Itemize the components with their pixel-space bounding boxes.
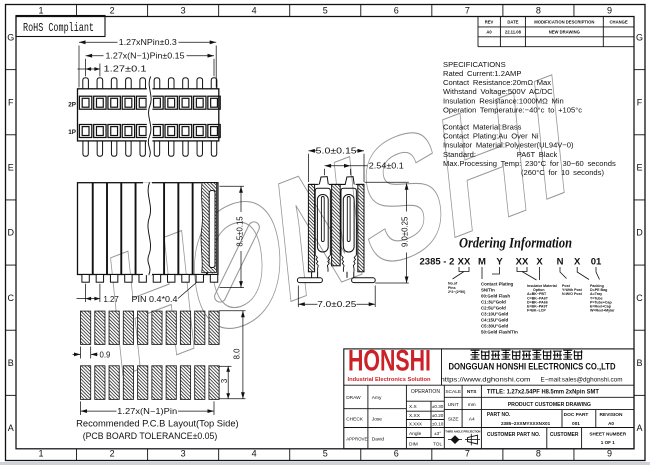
svg-text:C1:3U"Gold: C1:3U"Gold [481, 300, 506, 305]
svg-text:C4:15U"Gold: C4:15U"Gold [481, 318, 509, 323]
svg-text:A4: A4 [469, 417, 475, 423]
svg-text:X: X [574, 256, 581, 267]
svg-text:F: F [637, 97, 643, 107]
svg-text:G: G [7, 32, 14, 42]
svg-text:N:W/O Post: N:W/O Post [562, 292, 583, 296]
svg-text:TITLE: 1.27x2.54PF H8.5mm 2xNp: TITLE: 1.27x2.54PF H8.5mm 2xNpin SMT [487, 389, 599, 395]
svg-text:HONSHI: HONSHI [348, 345, 431, 378]
svg-text:2*2~(2*50): 2*2~(2*50) [448, 290, 466, 294]
svg-text:1.27xNPin±0.3: 1.27xNPin±0.3 [119, 38, 177, 47]
svg-text:XX: XX [516, 256, 529, 267]
svg-text:THIRD ANGLE PROJECTION: THIRD ANGLE PROJECTION [445, 430, 480, 434]
svg-text:5: 5 [323, 449, 328, 459]
svg-text:Contact Material:Brass: Contact Material:Brass [443, 122, 522, 131]
svg-text:±3°: ±3° [434, 431, 441, 436]
svg-text:DRAW: DRAW [346, 395, 361, 401]
svg-text:7: 7 [465, 449, 470, 459]
svg-text:SIZE: SIZE [448, 417, 459, 423]
svg-text:1.27x(N−1)Pin: 1.27x(N−1)Pin [117, 407, 177, 416]
svg-text:01: 01 [591, 256, 602, 267]
svg-text:Rated Current:1.2AMP: Rated Current:1.2AMP [443, 69, 521, 78]
svg-text:Contact Plating: Contact Plating [481, 282, 514, 287]
svg-text:(PCB BOARD TOLERANCE±0.05): (PCB BOARD TOLERANCE±0.05) [83, 431, 218, 441]
svg-text:Industrial Electronics Solutio: Industrial Electronics Solution [348, 377, 431, 383]
svg-text:2385 - 2: 2385 - 2 [420, 256, 455, 267]
svg-text:F=BK−LCP: F=BK−LCP [527, 309, 546, 313]
svg-text:8.0: 8.0 [233, 348, 242, 360]
svg-text:F: F [8, 97, 14, 107]
svg-text:DOC PART: DOC PART [564, 412, 589, 418]
svg-text:Standard: PA6T Black: Standard: PA6T Black [443, 150, 558, 159]
svg-text:CUSTOMER: CUSTOMER [550, 432, 579, 438]
svg-text:1.27x(N−1)Pin±0.15: 1.27x(N−1)Pin±0.15 [106, 51, 186, 60]
svg-text:2385−2XXMYXXXNX01: 2385−2XXMYXXXNX01 [501, 421, 551, 426]
svg-text:9: 9 [607, 449, 612, 459]
svg-text:E: E [636, 163, 642, 173]
svg-text:8.5±0.15: 8.5±0.15 [236, 216, 245, 247]
svg-text:3: 3 [220, 379, 229, 383]
svg-text:Withstand Voltage:500V AC/DC: Withstand Voltage:500V AC/DC [443, 87, 553, 96]
svg-text:D: D [636, 228, 643, 238]
svg-text:Insulator Material:Polyester(U: Insulator Material:Polyester(UL94V−0) [443, 141, 574, 150]
svg-text:B: B [8, 358, 14, 368]
svg-text:David: David [372, 436, 385, 442]
svg-text:6: 6 [394, 6, 399, 16]
svg-text:UNIT: UNIT [448, 402, 459, 408]
svg-text:NEW DRAWING: NEW DRAWING [549, 30, 580, 35]
svg-text:OPERATION: OPERATION [411, 389, 440, 395]
svg-text:C: C [636, 293, 643, 303]
svg-text:5: 5 [323, 6, 328, 16]
svg-text:1.27: 1.27 [104, 295, 119, 304]
svg-text:Insulation Resistance:1000MΩ M: Insulation Resistance:1000MΩ Min [443, 96, 564, 105]
svg-text:PIN 0.4*0.4: PIN 0.4*0.4 [132, 295, 179, 304]
svg-text:mm: mm [468, 403, 476, 408]
svg-text:Max.Processing Temp: 230°C for: Max.Processing Temp: 230°C for 30−60 sec… [443, 159, 616, 168]
svg-text:1.27±0.1: 1.27±0.1 [104, 65, 147, 74]
svg-text:5.0±0.15: 5.0±0.15 [316, 146, 358, 155]
svg-text:Contact Resistance:20mΩ Max: Contact Resistance:20mΩ Max [443, 78, 551, 87]
svg-text:PART NO.: PART NO. [487, 412, 511, 418]
svg-text:Ordering Information: Ordering Information [459, 236, 572, 252]
svg-text:TOL: TOL [433, 442, 442, 447]
svg-text:REV: REV [485, 20, 494, 25]
svg-text:22.11.08: 22.11.08 [505, 30, 522, 35]
svg-text:E: E [8, 163, 14, 173]
svg-text:3: 3 [181, 6, 186, 16]
svg-text:±0.30: ±0.30 [432, 404, 444, 409]
svg-text:SN/Tin: SN/Tin [481, 288, 495, 293]
svg-text:B: B [636, 358, 642, 368]
svg-text:Angle: Angle [409, 431, 422, 437]
svg-text:M: M [478, 256, 486, 267]
svg-text:2: 2 [110, 449, 115, 459]
svg-text:CHECK: CHECK [346, 416, 364, 422]
svg-text:CHANGE: CHANGE [610, 20, 628, 25]
svg-text:4: 4 [252, 449, 257, 459]
svg-text:DATE: DATE [507, 20, 518, 25]
svg-text:1: 1 [39, 449, 44, 459]
svg-text:8: 8 [536, 449, 541, 459]
svg-text:Recommended P.C.B Layout(Top S: Recommended P.C.B Layout(Top Side) [76, 418, 239, 428]
svg-text:001: 001 [572, 421, 580, 426]
svg-text:CUSTOMER PART NO.: CUSTOMER PART NO. [487, 432, 541, 438]
svg-text:SHEET NUMBER: SHEET NUMBER [589, 431, 626, 436]
svg-text:X.XXX: X.XXX [409, 422, 422, 427]
svg-text:X.X: X.X [409, 404, 418, 410]
svg-text:C2:5U"Gold: C2:5U"Gold [481, 306, 506, 311]
svg-text:50:Gold Flash/Tin: 50:Gold Flash/Tin [481, 330, 518, 335]
svg-text:C: C [7, 293, 14, 303]
svg-text:RoHS Compliant: RoHS Compliant [23, 22, 94, 35]
svg-text:2P: 2P [68, 101, 76, 108]
svg-text:REVISION: REVISION [600, 412, 623, 418]
svg-text:1P: 1P [68, 129, 76, 136]
svg-text:X.XX: X.XX [409, 413, 421, 419]
svg-text:DIM: DIM [409, 442, 418, 448]
svg-text:APPROVE: APPROVE [346, 436, 367, 441]
svg-text:00:Gold Flash: 00:Gold Flash [481, 294, 510, 299]
svg-text:0.9: 0.9 [100, 351, 111, 360]
svg-text:C5:30U"Gold: C5:30U"Gold [481, 324, 509, 329]
svg-text:±0.10: ±0.10 [432, 422, 444, 427]
svg-text:3: 3 [181, 449, 186, 459]
svg-text:A: A [8, 423, 14, 433]
svg-text:X: X [536, 256, 543, 267]
svg-text:Y: Y [496, 256, 503, 267]
svg-text:1 OF 1: 1 OF 1 [601, 440, 615, 445]
svg-text:A0: A0 [486, 30, 492, 35]
svg-text:Jose: Jose [372, 416, 382, 422]
svg-text:DONGGUAN HONSHI ELECTRONICS CO: DONGGUAN HONSHI ELECTRONICS CO.,LTD [449, 362, 616, 372]
svg-text:XX: XX [458, 256, 471, 267]
svg-text:7.0±0.25: 7.0±0.25 [317, 300, 357, 309]
svg-text:9.0±0.25: 9.0±0.25 [400, 216, 409, 247]
svg-text:7: 7 [465, 6, 470, 16]
svg-text:9: 9 [607, 6, 612, 16]
svg-text:SPECIFICATIONS: SPECIFICATIONS [443, 60, 506, 69]
svg-text:PRODUCT CUSTOMER DRAWING: PRODUCT CUSTOMER DRAWING [508, 402, 591, 408]
svg-text:Operation Temperature:−40°c to: Operation Temperature:−40°c to +105°c [443, 106, 582, 115]
svg-text:A: A [636, 423, 642, 433]
svg-text:https://www.dghonshi.com: https://www.dghonshi.com [441, 377, 531, 384]
svg-text:C3:10U"Gold: C3:10U"Gold [481, 312, 509, 317]
svg-text:A0: A0 [608, 421, 614, 426]
svg-text:E−mail:sales@dghonshi.com: E−mail:sales@dghonshi.com [541, 377, 623, 384]
svg-text:G: G [636, 32, 643, 42]
svg-text:N: N [557, 256, 564, 267]
svg-text:(260°C for 10 seconds): (260°C for 10 seconds) [521, 168, 604, 177]
svg-text:2: 2 [110, 6, 115, 16]
svg-text:NTS: NTS [467, 389, 477, 395]
svg-text:2.54±0.1: 2.54±0.1 [369, 162, 404, 171]
svg-text:8: 8 [536, 6, 541, 16]
svg-text:±0.20: ±0.20 [432, 413, 444, 418]
svg-text:D: D [7, 228, 14, 238]
svg-text:W=Reel+Mylar: W=Reel+Mylar [590, 309, 615, 313]
svg-text:SCALE: SCALE [445, 389, 461, 395]
svg-text:6: 6 [394, 449, 399, 459]
svg-text:MODIFICATION DESCRIPTION: MODIFICATION DESCRIPTION [534, 20, 594, 25]
svg-text:Amy: Amy [372, 395, 382, 401]
svg-text:4: 4 [252, 6, 257, 16]
svg-text:Contact Plating:Au Over Ni: Contact Plating:Au Over Ni [443, 132, 539, 141]
svg-text:1: 1 [39, 6, 44, 16]
